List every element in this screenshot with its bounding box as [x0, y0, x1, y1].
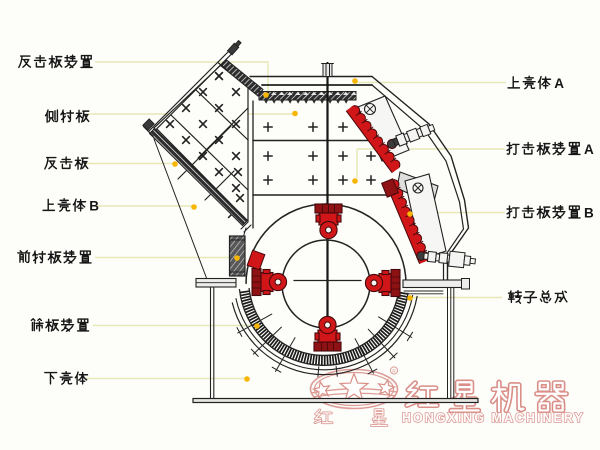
svg-text:B: B — [89, 199, 99, 214]
svg-text:B: B — [584, 206, 594, 221]
svg-text:A: A — [584, 142, 594, 157]
svg-text:HONGXING MACHINERY: HONGXING MACHINERY — [402, 411, 585, 425]
svg-text:R: R — [392, 369, 396, 375]
svg-text:A: A — [554, 76, 564, 91]
